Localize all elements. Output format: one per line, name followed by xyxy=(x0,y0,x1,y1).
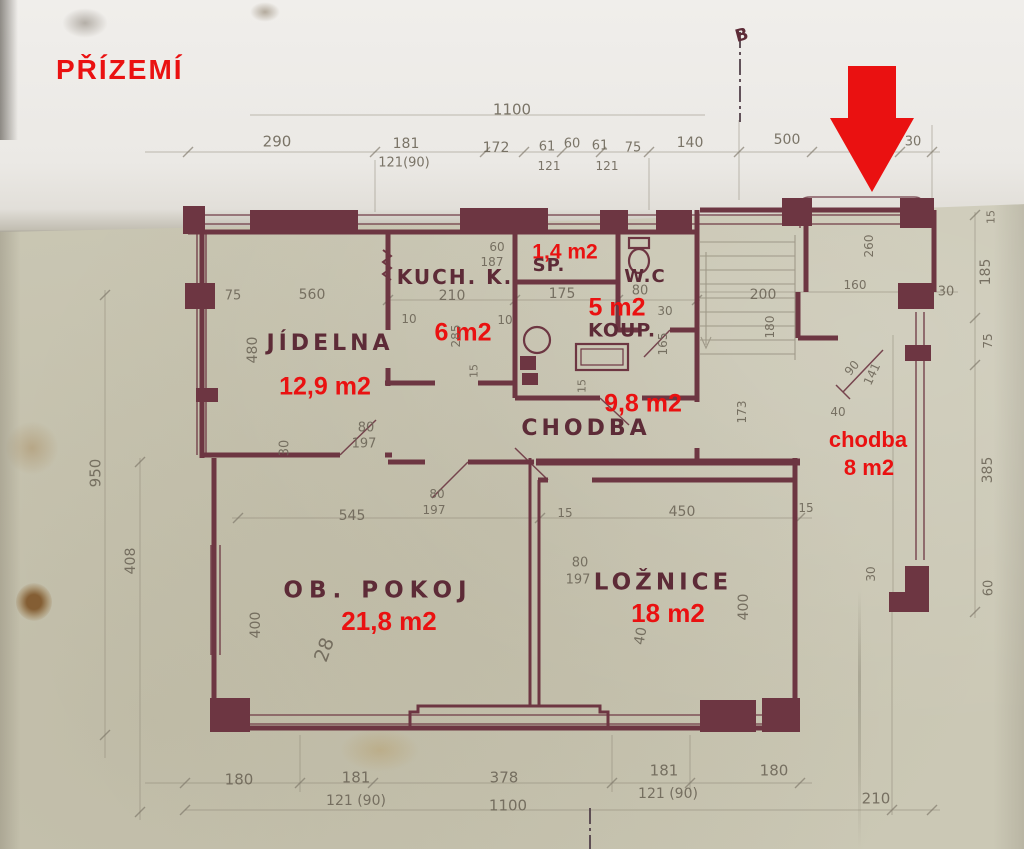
dimension-label: 80 xyxy=(358,422,375,435)
staircase xyxy=(700,235,795,360)
washbasin xyxy=(524,327,550,353)
dimension-label: 121 xyxy=(538,160,561,172)
dimension-label: 75 xyxy=(225,290,242,303)
dimension-label: 140 xyxy=(677,136,704,150)
room-name-label: OB. POKOJ xyxy=(283,580,472,603)
room-name-label: SP. xyxy=(533,257,566,275)
dimension-label: 385 xyxy=(981,457,995,484)
floorplan-photo: PŘÍZEMÍ 1,4 m25 m26 m212,9 m29,8 m2chodb… xyxy=(0,0,1024,849)
floorplan-drawing xyxy=(0,0,1024,849)
area-annotation: 6 m2 xyxy=(435,321,492,346)
dimension-label: 75 xyxy=(982,333,994,348)
dimension-label: 210 xyxy=(862,792,891,807)
bathtub xyxy=(576,344,628,370)
dimension-label: 10 xyxy=(401,313,416,325)
dimension-label: 545 xyxy=(339,509,366,523)
dimension-label: 80 xyxy=(572,557,589,570)
area-annotation: chodba xyxy=(829,429,907,451)
dimension-label: 15 xyxy=(798,502,813,514)
room-name-label: KUCH. K. xyxy=(397,267,513,287)
dimension-label: 450 xyxy=(669,505,696,519)
dimension-label: 500 xyxy=(774,133,801,147)
dimension-label: 180 xyxy=(760,764,789,779)
dimension-label: 197 xyxy=(352,438,377,451)
dimension-label: 1100 xyxy=(489,799,527,814)
room-name-label: CHODBA xyxy=(521,418,650,440)
dimension-label: 15 xyxy=(557,507,572,519)
dimension-label: 400 xyxy=(249,612,263,639)
dimension-label: 121(90) xyxy=(378,157,430,170)
dimension-label: 175 xyxy=(549,287,576,301)
area-annotation: 8 m2 xyxy=(844,457,894,479)
dimension-label: 378 xyxy=(490,771,519,786)
dimension-label: 1100 xyxy=(493,103,531,118)
dimension-label: 285 xyxy=(450,325,462,348)
area-annotation: 18 m2 xyxy=(631,600,705,626)
dimension-label: 185 xyxy=(979,259,993,286)
dimension-label: 408 xyxy=(124,548,138,575)
dimension-label: 60 xyxy=(489,241,504,253)
dimension-label: 61 xyxy=(539,141,556,154)
dimension-label: 75 xyxy=(625,142,642,155)
dimension-label: 165 xyxy=(657,333,669,356)
dimension-label: 480 xyxy=(246,337,260,364)
walls xyxy=(183,197,934,732)
dimension-label: 197 xyxy=(566,574,591,587)
dimension-label: 260 xyxy=(863,235,875,258)
dimension-label: 80 xyxy=(632,285,649,298)
dimension-label: 40 xyxy=(830,406,845,418)
dimension-label: 172 xyxy=(483,141,510,155)
dimension-label: 400 xyxy=(737,594,751,621)
sink-unit xyxy=(522,373,538,385)
area-annotation: 12,9 m2 xyxy=(279,375,371,400)
dimension-label: 30 xyxy=(657,305,672,317)
dimension-label: 121 (90) xyxy=(326,794,386,808)
dimension-label: 180 xyxy=(764,316,776,339)
dimension-label: 197 xyxy=(423,504,446,516)
floor-title: PŘÍZEMÍ xyxy=(56,54,184,86)
dimension-label: 60 xyxy=(564,138,581,151)
dimension-label: 30 xyxy=(905,136,922,149)
dimension-label: 15 xyxy=(469,364,480,378)
corner-pillar xyxy=(889,566,929,612)
dimension-label: 181 xyxy=(342,771,371,786)
dimension-label: 30 xyxy=(865,566,877,581)
room-name-label: LOŽNICE xyxy=(594,572,732,595)
dimension-label: 40 xyxy=(633,626,650,646)
dimension-label: 30 xyxy=(279,440,292,457)
dimension-label: 181 xyxy=(650,764,679,779)
dimension-label: 950 xyxy=(89,459,104,488)
dimension-label: 121 xyxy=(596,160,619,172)
dimension-label: 181 xyxy=(393,137,420,151)
dimension-label: 30 xyxy=(938,286,955,299)
room-name-label: JÍDELNA xyxy=(266,333,393,355)
dimension-label: 560 xyxy=(299,288,326,302)
dimension-label: 61 xyxy=(592,140,609,153)
stove xyxy=(520,356,536,370)
area-annotation: 21,8 m2 xyxy=(341,608,436,634)
dimension-label: 121 (90) xyxy=(638,787,698,801)
dimension-label: 160 xyxy=(844,279,867,291)
dimension-label: 173 xyxy=(736,401,748,424)
dimension-label: 180 xyxy=(225,773,254,788)
area-annotation: 9,8 m2 xyxy=(604,392,682,417)
dimension-label: 15 xyxy=(986,210,997,224)
room-name-label: KOUP. xyxy=(588,322,656,341)
dimension-label: 15 xyxy=(577,379,588,393)
down-arrow-icon xyxy=(830,66,914,192)
toilet-tank xyxy=(629,238,649,248)
dimension-label: 290 xyxy=(263,135,292,150)
dimension-label: 10 xyxy=(497,314,512,326)
dimension-label: 80 xyxy=(429,488,444,500)
dimension-label: 210 xyxy=(439,289,466,303)
dimension-label: 60 xyxy=(983,580,996,597)
dimension-label: 187 xyxy=(481,256,504,268)
area-annotation: 5 m2 xyxy=(589,296,646,321)
dimension-label: 200 xyxy=(750,288,777,302)
